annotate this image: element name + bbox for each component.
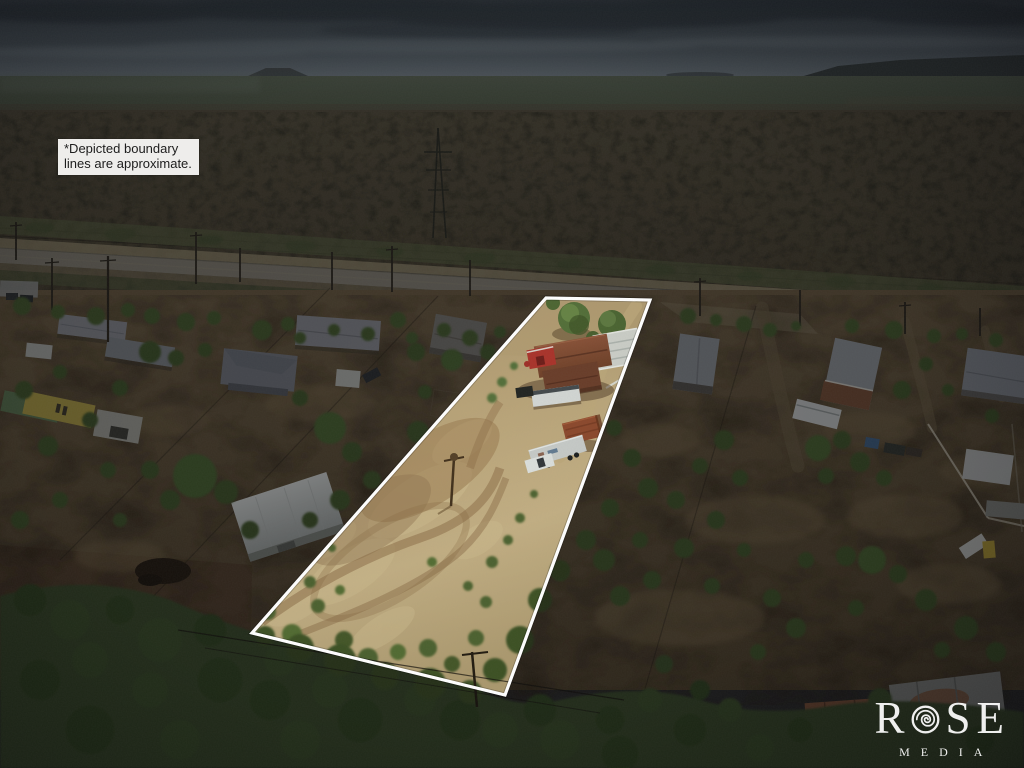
film-grain xyxy=(0,0,1024,768)
watermark-brand-row: R SE xyxy=(874,696,1010,741)
aerial-photo: *Depicted boundary lines are approximate… xyxy=(0,0,1024,768)
rose-media-watermark: R SE MEDIA xyxy=(874,696,1010,760)
watermark-letters-se: SE xyxy=(945,696,1010,741)
boundary-disclaimer: *Depicted boundary lines are approximate… xyxy=(58,139,199,175)
watermark-subtitle: MEDIA xyxy=(882,745,1010,760)
aerial-photo-scene xyxy=(0,0,1024,768)
watermark-letter-r: R xyxy=(874,696,906,741)
disclaimer-line-2: lines are approximate. xyxy=(64,156,192,171)
rose-icon xyxy=(910,704,941,735)
disclaimer-line-1: *Depicted boundary xyxy=(64,141,192,156)
